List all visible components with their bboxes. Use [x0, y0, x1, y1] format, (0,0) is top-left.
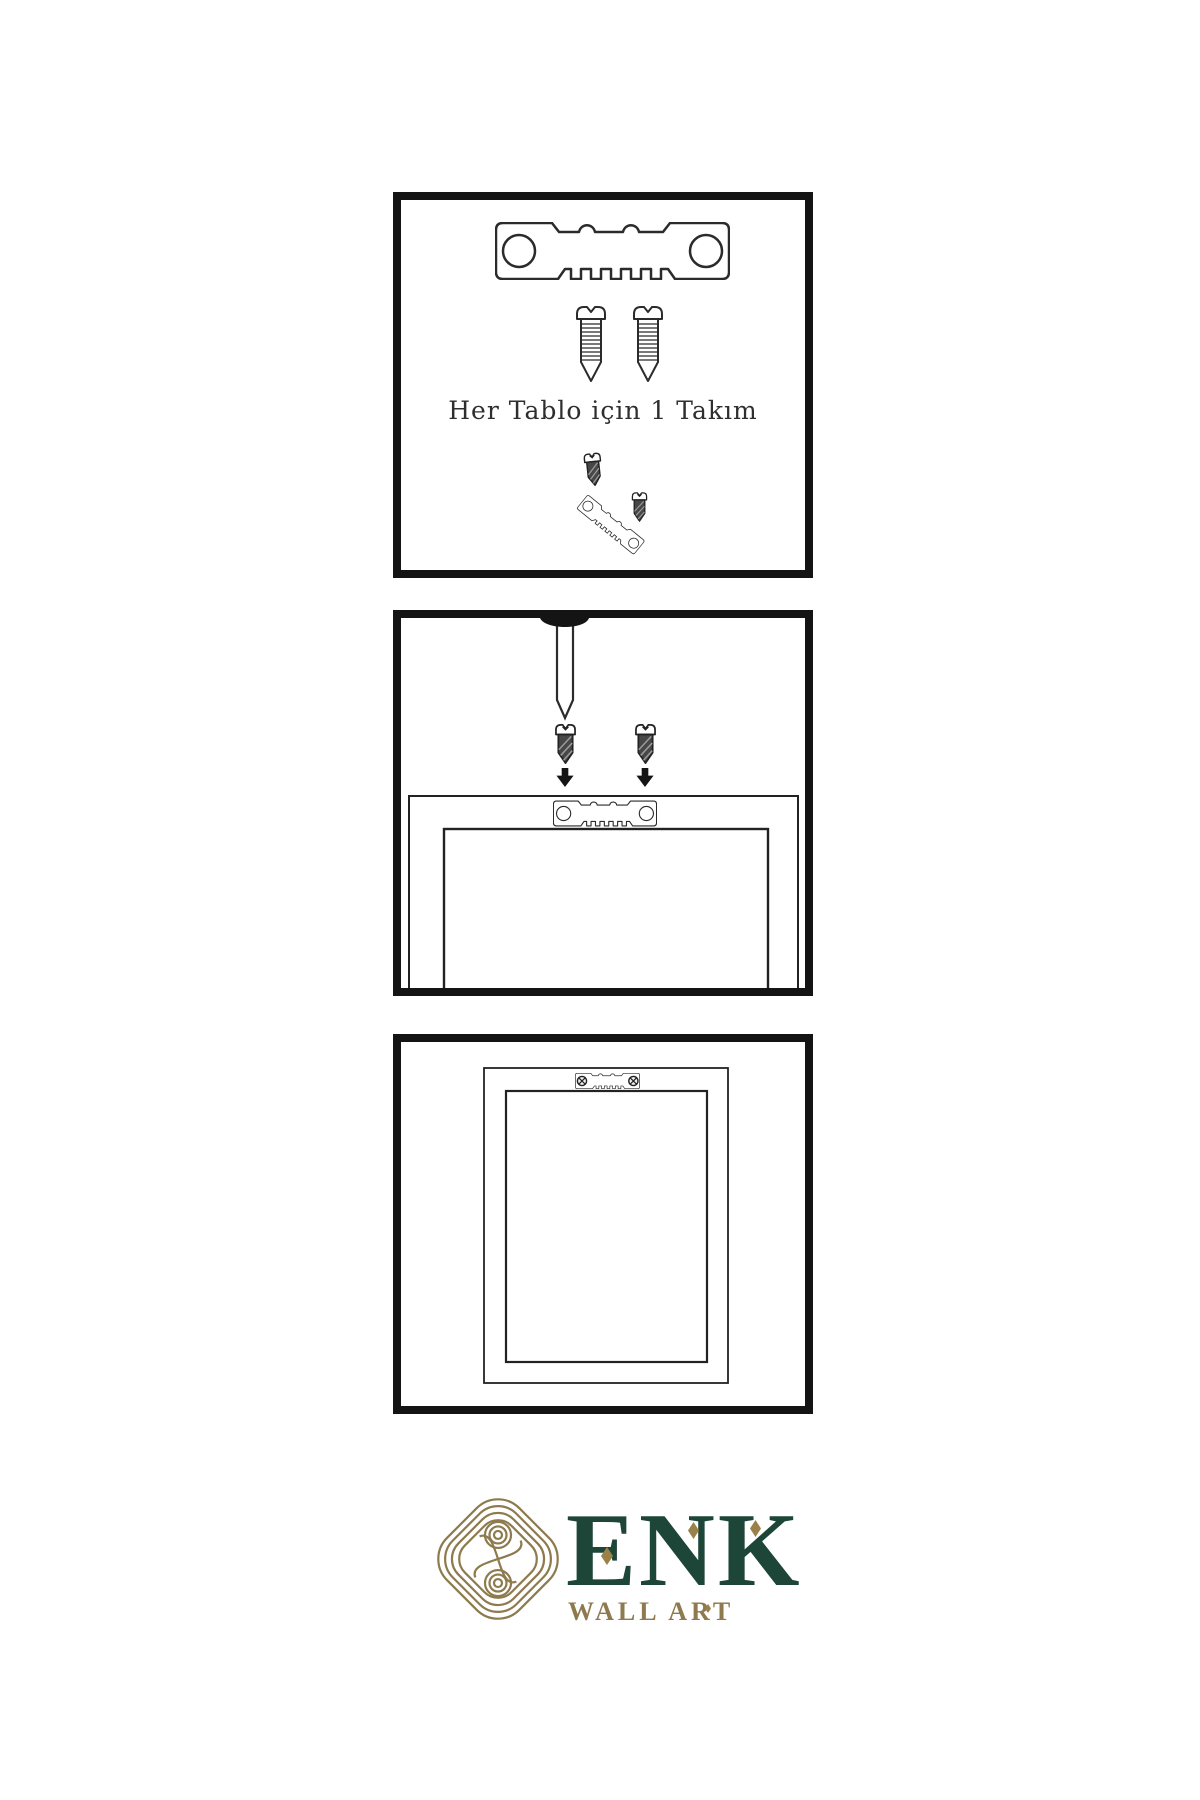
wall-nail-shaft: [557, 622, 573, 718]
panel-hanger-installed: [393, 1034, 813, 1414]
mounting-drawing: [401, 618, 805, 988]
frame-back-inner-outline: [444, 829, 768, 988]
instruction-sheet: Her Tablo için 1 Takım: [0, 0, 1200, 1800]
phillips-screw-head-icon: [629, 1076, 638, 1085]
down-arrow-icon: [556, 768, 573, 787]
mounting-screw-icon: [636, 725, 655, 763]
frame-back-inner-outline: [506, 1091, 707, 1362]
down-arrow-icon: [636, 768, 653, 787]
panel-hardware-kit: Her Tablo için 1 Takım: [393, 192, 813, 578]
sawtooth-hanger-icon: [553, 801, 656, 826]
sawtooth-hanger-icon: [496, 223, 729, 279]
screw-icon: [577, 307, 605, 381]
wall-nail-head: [540, 618, 589, 627]
brand-name: ENK: [566, 1497, 803, 1602]
kit-caption: Her Tablo için 1 Takım: [401, 396, 805, 425]
brand-knot-icon: [433, 1494, 563, 1629]
mounting-screw-icon: [556, 725, 575, 763]
panel-mounting-instructions: [393, 610, 813, 996]
brand-subtitle: WALL ART: [568, 1597, 734, 1627]
mounting-screw-icon: [584, 453, 603, 486]
installed-drawing: [401, 1042, 805, 1406]
hardware-kit-drawing: [401, 200, 805, 570]
screw-icon: [634, 307, 662, 381]
mounting-screw-icon: [632, 493, 646, 521]
phillips-screw-head-icon: [577, 1076, 586, 1085]
